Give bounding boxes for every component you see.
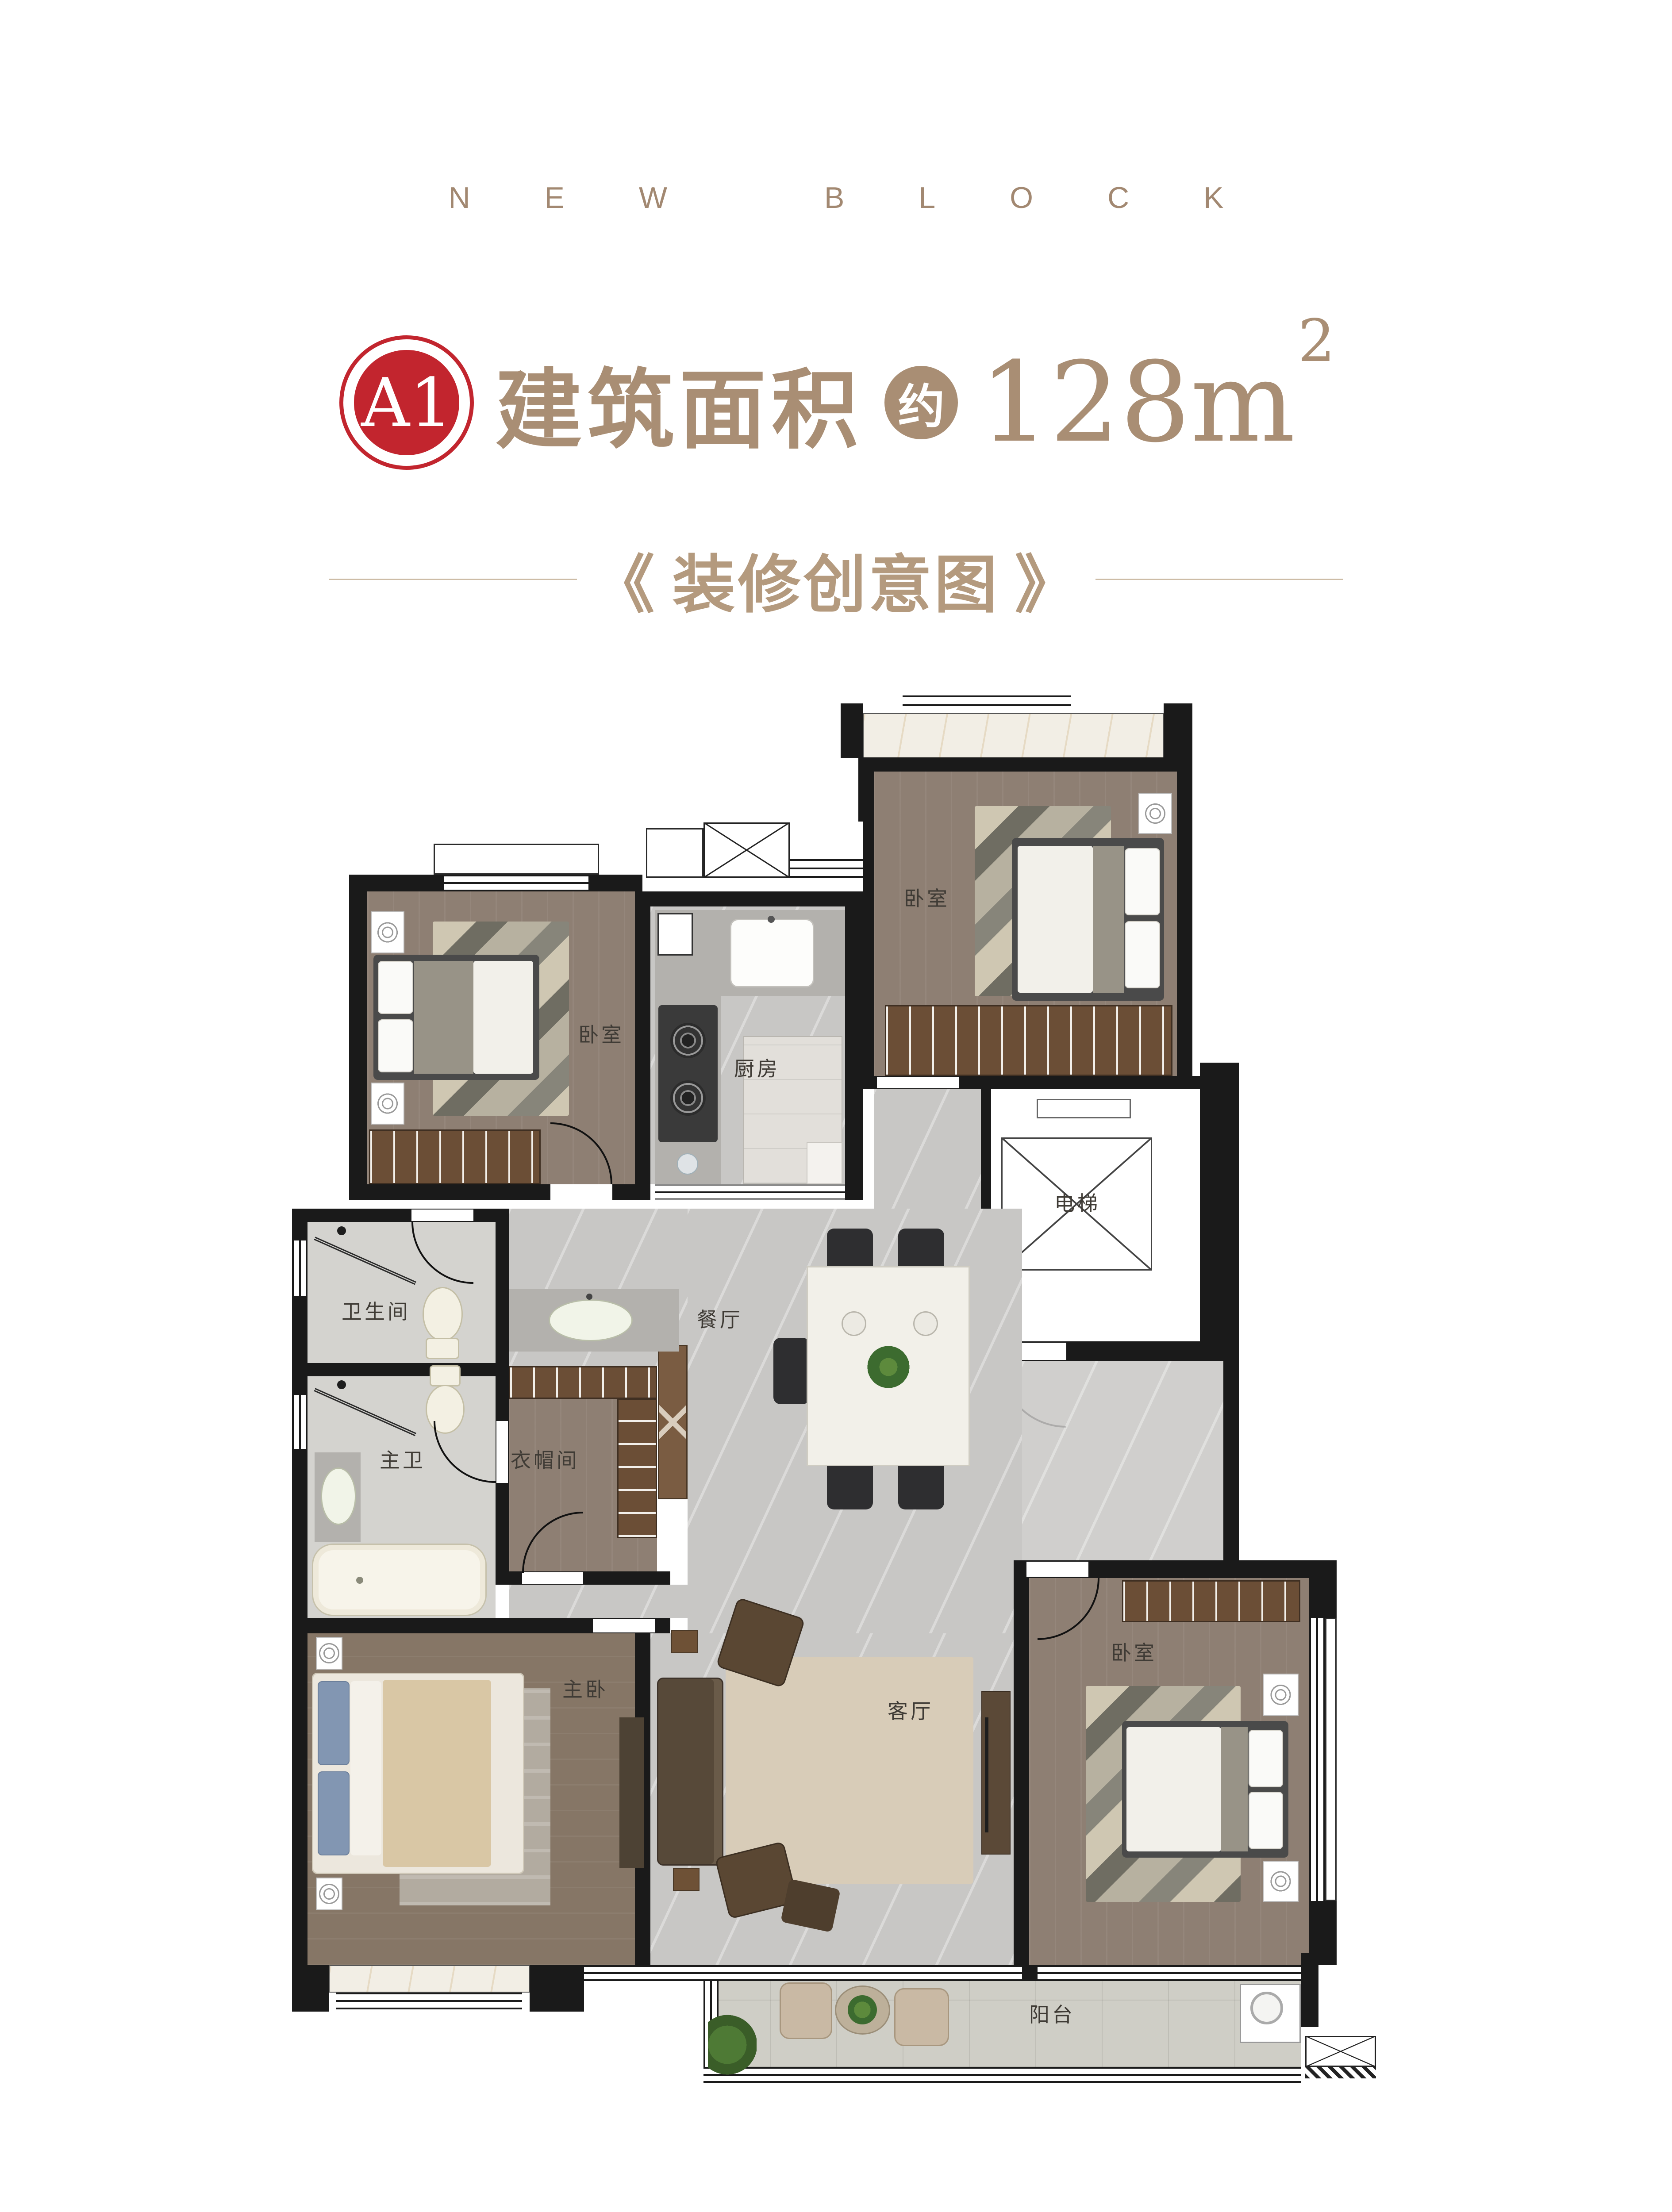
wall	[1223, 1361, 1239, 1569]
bed-mattress	[1018, 846, 1093, 993]
nightstand	[1263, 1674, 1299, 1716]
bed-duvet	[1221, 1727, 1248, 1851]
dining-chair	[773, 1338, 810, 1404]
room-label-dining: 餐厅	[697, 1304, 743, 1333]
door-opening	[1026, 1562, 1088, 1577]
window-sill	[1325, 1618, 1337, 1901]
subtitle-line-left	[329, 579, 577, 580]
wardrobe	[509, 1366, 657, 1399]
wash-basin	[549, 1299, 633, 1341]
bed-sheet	[350, 1681, 381, 1855]
toilet-tank	[430, 1365, 461, 1386]
window	[336, 1993, 522, 2009]
wardrobe	[617, 1399, 657, 1538]
wall	[858, 757, 1184, 772]
wall	[292, 1965, 329, 2012]
wall	[307, 1363, 496, 1376]
room-label-master-bedroom: 主卧	[562, 1674, 608, 1703]
bed-pillow	[378, 961, 413, 1014]
bed-pillow	[1125, 848, 1160, 915]
door-opening	[593, 1619, 655, 1632]
plant	[848, 1995, 877, 2024]
wall	[496, 1209, 509, 1571]
toilet-tank	[426, 1338, 459, 1359]
bed-mattress	[473, 961, 533, 1074]
tall-cabinet	[658, 1345, 688, 1499]
hatch-strip	[1305, 2067, 1376, 2078]
bed-blanket	[383, 1680, 491, 1867]
bed-pillow-blue	[318, 1771, 350, 1855]
subtitle-row: 《 装修创意图 》	[0, 534, 1672, 625]
hall-floor	[509, 1585, 688, 1618]
room-label-balcony: 阳台	[1029, 1999, 1075, 2028]
window	[292, 1395, 307, 1449]
wall	[349, 891, 367, 1200]
page-title: 建筑面积	[495, 340, 863, 465]
toilet	[423, 1287, 463, 1341]
wall	[635, 891, 650, 1200]
nightstand	[316, 1878, 342, 1910]
plant	[867, 1346, 910, 1388]
shower-head	[337, 1380, 346, 1389]
wall	[841, 703, 863, 758]
area-number: 128	[979, 338, 1190, 467]
window-sill	[434, 844, 599, 875]
room-label-bathroom: 卫生间	[342, 1296, 411, 1325]
wall	[530, 1965, 584, 2012]
wardrobe	[885, 1005, 1172, 1076]
wardrobe	[1122, 1580, 1300, 1622]
room-label-bedroom-right: 卧室	[1111, 1637, 1157, 1666]
door-opening	[877, 1077, 959, 1088]
bay-window-sill	[329, 1965, 530, 1993]
window	[292, 1240, 307, 1296]
room-label-cloakroom: 衣帽间	[511, 1444, 580, 1474]
faucet	[768, 916, 775, 923]
side-table	[673, 1868, 700, 1891]
page: { "brand": { "top": "NEW BLOCK", "bottom…	[0, 0, 1672, 2212]
wardrobe	[369, 1129, 541, 1184]
area-value: 128m2	[979, 347, 1332, 458]
shower-head	[337, 1226, 346, 1235]
nightstand	[371, 911, 404, 953]
room-label-bedroom-top-right: 卧室	[904, 883, 950, 912]
bed-pillow	[1249, 1730, 1283, 1787]
door-opening	[411, 1210, 473, 1221]
floor-plan: 卧室 卧室 厨房 电梯 餐厅 卫生间 主卫 衣帽间 主卧 客厅 卧室 阳台	[283, 695, 1389, 2129]
bed-pillow	[1125, 921, 1160, 988]
island-cabinet	[807, 1142, 842, 1184]
wall	[650, 891, 863, 906]
side-table	[671, 1630, 698, 1653]
flue-x-icon	[1305, 2036, 1376, 2067]
bathtub	[312, 1544, 487, 1616]
room-label-master-bathroom: 主卫	[380, 1444, 426, 1474]
wall	[1301, 1953, 1318, 2027]
door-opening	[522, 1572, 583, 1584]
wall	[1200, 1063, 1239, 1361]
tv-console	[619, 1717, 644, 1868]
faucet	[586, 1294, 592, 1300]
window	[790, 859, 863, 878]
room-label-living: 客厅	[888, 1695, 934, 1724]
unit-badge-label: A1	[354, 350, 459, 455]
room-label-kitchen: 厨房	[734, 1053, 780, 1082]
window	[1038, 1965, 1301, 1981]
brand-top: NEW BLOCK	[0, 180, 1672, 215]
bed-pillow	[1249, 1792, 1283, 1849]
washing-machine-door	[1250, 1992, 1283, 2024]
balcony-chair	[894, 1988, 949, 2046]
bed-pillow-blue	[318, 1681, 350, 1765]
water-heater	[657, 913, 693, 956]
bed-mattress	[1126, 1727, 1221, 1851]
nightstand	[1138, 793, 1172, 834]
wall	[588, 875, 642, 891]
plant	[708, 2014, 757, 2076]
nightstand	[316, 1637, 342, 1670]
flue-x-icon	[703, 822, 790, 878]
window-sill	[646, 828, 703, 878]
window-top-bay	[903, 695, 1071, 715]
wash-basin	[321, 1467, 356, 1525]
subtitle-open-bracket: 《	[592, 534, 657, 625]
kitchen-threshold	[655, 1184, 845, 1200]
wall	[1022, 1965, 1038, 1983]
title-row: A1 建筑面积 约 128m2	[0, 335, 1672, 470]
window	[1309, 1618, 1325, 1901]
approx-circle: 约	[884, 366, 958, 439]
bed-duvet	[1093, 846, 1124, 993]
bed-pillow	[378, 1019, 413, 1072]
wall	[349, 875, 444, 891]
bay-window-sill-top	[863, 713, 1164, 758]
wall	[1309, 1578, 1337, 1618]
wall	[292, 1209, 307, 2012]
area-unit: m	[1191, 338, 1295, 467]
subtitle-text: 装修创意图	[673, 534, 1000, 625]
window	[444, 875, 588, 891]
door-opening	[496, 1421, 508, 1483]
area-superscript: 2	[1298, 307, 1335, 375]
elevator-call-panel	[1037, 1099, 1131, 1118]
burner	[670, 1023, 706, 1058]
foyer-floor	[1022, 1361, 1223, 1565]
bathtub-drain	[356, 1577, 363, 1584]
plate	[913, 1311, 938, 1336]
kitchen-sink	[730, 919, 814, 987]
burner	[670, 1080, 706, 1116]
plate	[842, 1311, 866, 1336]
sliding-door	[584, 1965, 1022, 1981]
sofa	[657, 1678, 723, 1866]
room-label-bedroom-top-left: 卧室	[578, 1019, 624, 1048]
nightstand	[371, 1083, 404, 1125]
wall	[1177, 703, 1192, 1089]
subtitle-close-bracket: 》	[1015, 534, 1080, 625]
bed-duvet	[414, 961, 473, 1074]
corridor-floor	[874, 1089, 981, 1209]
wall	[349, 1184, 550, 1200]
room-label-elevator: 电梯	[1054, 1187, 1100, 1217]
balcony-chair	[780, 1982, 832, 2039]
tv-screen	[985, 1717, 988, 1832]
wall	[1014, 1578, 1029, 1965]
subtitle-line-right	[1095, 579, 1343, 580]
dish	[677, 1153, 698, 1175]
wall	[845, 906, 863, 1200]
nightstand	[1263, 1861, 1299, 1902]
wall	[307, 1209, 509, 1222]
balcony-rail	[703, 2067, 1301, 2083]
unit-badge: A1	[339, 335, 474, 470]
